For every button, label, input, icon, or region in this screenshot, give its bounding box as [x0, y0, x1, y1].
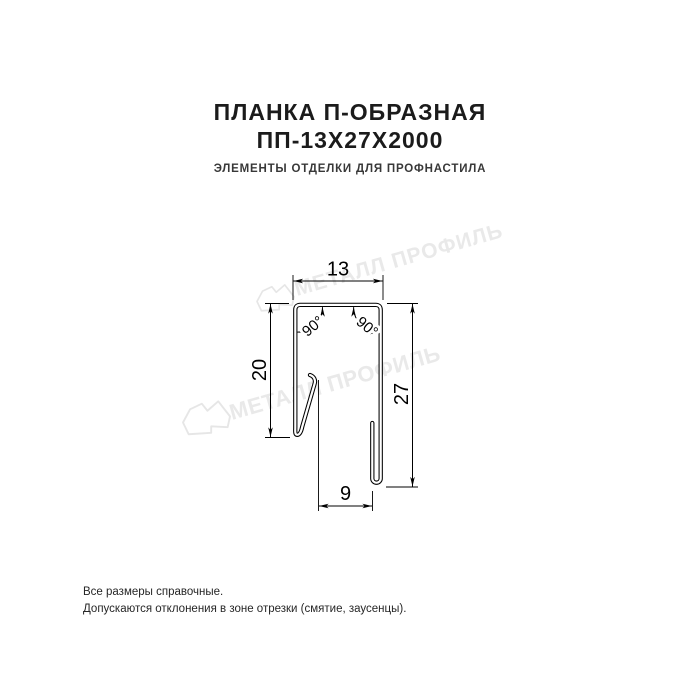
- dimension-right-height: 27: [386, 304, 418, 488]
- angle-label-left: 90°: [299, 313, 327, 341]
- page-root: ПЛАНКА П-ОБРАЗНАЯ ПП-13Х27Х2000 ЭЛЕМЕНТЫ…: [0, 0, 700, 700]
- dimension-label-top-width: 13: [327, 259, 349, 281]
- angle-label-right: 90°: [353, 313, 381, 341]
- dimension-label-right-height: 27: [391, 383, 413, 405]
- watermark-text: МЕТАЛЛ ПРОФИЛЬ: [292, 219, 506, 301]
- dimension-bottom-width: 9: [319, 380, 373, 511]
- watermark-logo-icon: [257, 285, 294, 311]
- angle-annotation-right: 90°: [353, 307, 381, 341]
- watermark-text: МЕТАЛЛ ПРОФИЛЬ: [226, 341, 443, 425]
- footer-line-1: Все размеры справочные.: [83, 584, 643, 601]
- footer-line-2: Допускаются отклонения в зоне отрезки (с…: [83, 601, 643, 618]
- footer-note: Все размеры справочные. Допускаются откл…: [83, 584, 643, 618]
- watermark-upper: МЕТАЛЛ ПРОФИЛЬ: [257, 219, 506, 311]
- dimension-label-left-height: 20: [249, 359, 271, 381]
- dimension-label-bottom-width: 9: [340, 483, 351, 505]
- watermark-logo-icon: [183, 401, 230, 434]
- angle-annotation-left: 90°: [297, 307, 327, 340]
